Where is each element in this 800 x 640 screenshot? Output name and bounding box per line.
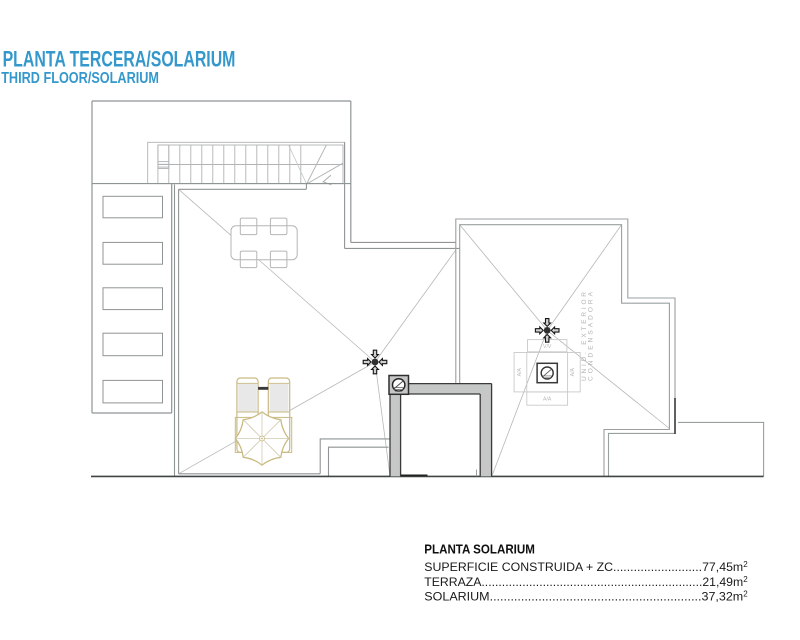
svg-text:2: 2 xyxy=(743,575,748,584)
svg-text:2: 2 xyxy=(743,560,748,569)
svg-text:A/A: A/A xyxy=(543,397,552,403)
svg-text:PLANTA TERCERA/SOLARIUM: PLANTA TERCERA/SOLARIUM xyxy=(3,47,236,72)
svg-text:THIRD FLOOR/SOLARIUM: THIRD FLOOR/SOLARIUM xyxy=(1,70,159,87)
svg-text:PLANTA SOLARIUM: PLANTA SOLARIUM xyxy=(424,542,535,556)
svg-text:A/A: A/A xyxy=(570,367,576,376)
svg-text:V/V: V/V xyxy=(543,344,552,350)
svg-text:2: 2 xyxy=(743,590,748,599)
svg-text:SUPERFICIE CONSTRUIDA + ZC....: SUPERFICIE CONSTRUIDA + ZC..............… xyxy=(424,560,743,574)
svg-text:SOLARIUM......................: SOLARIUM................................… xyxy=(424,590,743,604)
svg-text:TERRAZA.......................: TERRAZA.................................… xyxy=(424,575,743,589)
svg-text:A/A: A/A xyxy=(517,367,523,376)
